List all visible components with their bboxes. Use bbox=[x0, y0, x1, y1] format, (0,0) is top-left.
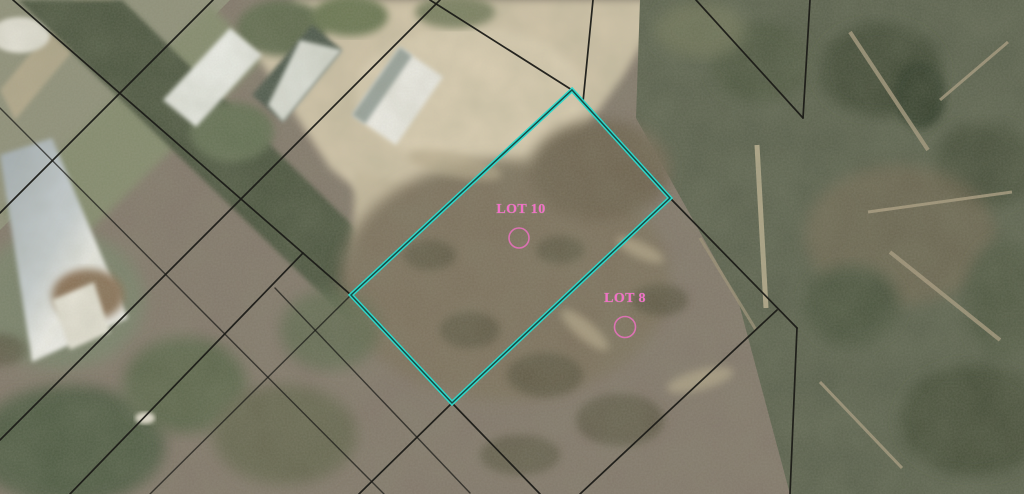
aerial-map-viewport[interactable]: LOT 10LOT 8 bbox=[0, 0, 1024, 494]
aerial-map: LOT 10LOT 8 bbox=[0, 0, 1024, 494]
aerial-photo bbox=[0, 0, 1024, 494]
lot-label-text: LOT 10 bbox=[496, 202, 545, 217]
lot-label-text: LOT 8 bbox=[604, 291, 646, 306]
